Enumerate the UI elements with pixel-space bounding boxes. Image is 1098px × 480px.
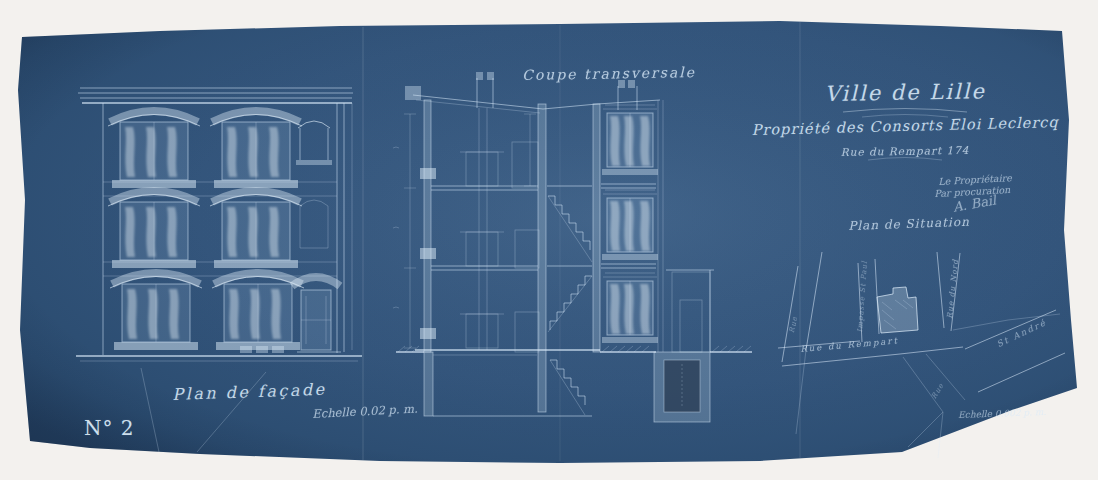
facade-basement-grille xyxy=(240,346,284,353)
section-cesspit xyxy=(654,352,710,422)
section-title: Coupe transversale xyxy=(522,64,696,83)
section-interior-windows xyxy=(602,105,658,343)
title-city: Ville de Lille xyxy=(824,79,986,106)
blueprint-scan: Ville de Lille Propriété des Consorts El… xyxy=(0,0,1098,480)
sheet-number: N° 2 xyxy=(84,416,135,440)
title-address: Rue du Rempart 174 xyxy=(841,144,970,158)
